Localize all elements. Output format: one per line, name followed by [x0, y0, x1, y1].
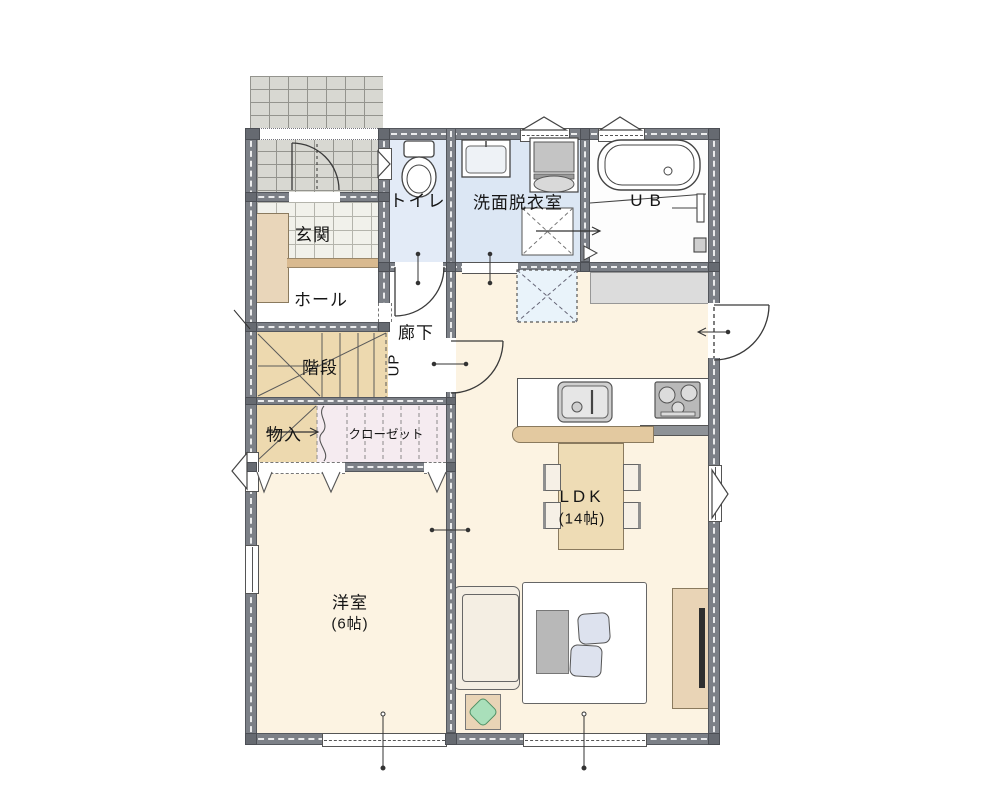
- pillar: [446, 462, 456, 472]
- hall-corridor-opening: [378, 303, 392, 322]
- ldk-south-window: [523, 733, 647, 747]
- western-room-west-window: [245, 545, 259, 594]
- wall-washroom-bath: [580, 128, 590, 262]
- pillar: [378, 192, 390, 202]
- entrance-door-opening: [289, 192, 340, 202]
- back-door-arc: [714, 305, 769, 360]
- pillar: [445, 733, 457, 745]
- room-label-storage: 物入: [266, 421, 302, 446]
- washroom-door-opening: [462, 262, 518, 274]
- back-door-opening: [708, 303, 720, 358]
- room-label-bath: UB: [630, 191, 668, 211]
- western-room-south-window: [322, 733, 447, 747]
- room-label-stairs: 階段: [302, 354, 338, 379]
- washroom-window: [520, 128, 570, 142]
- room-label-closet: クローゼット: [348, 424, 423, 443]
- floor-cushion: [569, 644, 603, 678]
- room-size-ldk: (14帖): [559, 508, 606, 529]
- pillar: [708, 128, 720, 140]
- pillar: [708, 262, 720, 272]
- pillar: [245, 192, 257, 202]
- pillar: [245, 462, 257, 472]
- chair: [543, 464, 561, 491]
- shoe-cabinet: [255, 213, 289, 303]
- chair: [623, 502, 641, 529]
- wall-center: [446, 128, 456, 733]
- pillar: [378, 322, 390, 332]
- room-label-hall: ホール: [294, 286, 348, 311]
- pillar: [446, 262, 456, 272]
- porch-tiles: [250, 76, 383, 128]
- pillar: [708, 733, 720, 745]
- room-label-toilet: トイレ: [390, 187, 447, 212]
- porch-side-window: [378, 148, 392, 180]
- room-label-corridor: 廊下: [398, 319, 434, 344]
- floor-plan: 玄関 ホール トイレ 洗面脱衣室 UB 廊下 UP 階段 物入 クローゼット L…: [0, 0, 1000, 800]
- counter-bar: [512, 426, 654, 443]
- bath-window: [598, 128, 645, 142]
- storage-door-opening: [255, 462, 345, 474]
- room-label-washroom: 洗面脱衣室: [473, 189, 563, 214]
- floor-cushion: [577, 612, 611, 645]
- pillar: [245, 397, 257, 405]
- pillar: [580, 262, 590, 272]
- room-label-western-room: 洋室: [332, 589, 368, 614]
- tv: [699, 608, 705, 688]
- pillar: [378, 262, 390, 272]
- room-label-ldk: LDK: [559, 487, 604, 507]
- pillar: [245, 322, 257, 332]
- wall-left: [245, 128, 257, 745]
- room-label-genkan: 玄関: [295, 221, 331, 246]
- entrance-step: [287, 258, 378, 268]
- porch-edge: [245, 128, 390, 140]
- pillar: [446, 397, 456, 405]
- wall-hall-south: [245, 322, 390, 332]
- ldk-door-opening: [446, 338, 456, 392]
- entrance-alcove-tiles: [257, 138, 378, 192]
- closet-door-opening: [424, 462, 446, 474]
- wall-bottom: [245, 733, 720, 745]
- wall-stairs-south: [245, 397, 456, 405]
- ldk-east-window: [708, 465, 722, 522]
- pillar: [245, 128, 260, 140]
- pillar: [378, 128, 390, 140]
- chair: [623, 464, 641, 491]
- room-size-western-room: (6帖): [331, 613, 368, 634]
- toilet-door-opening: [395, 262, 443, 272]
- stairs-up-label: UP: [386, 354, 403, 377]
- wall-right: [708, 128, 720, 745]
- kitchen-counter: [517, 378, 710, 427]
- laundry-counter: [590, 272, 710, 304]
- pillar: [580, 128, 590, 140]
- pillar: [245, 733, 257, 745]
- coffee-table: [536, 610, 569, 674]
- sofa-seat: [462, 594, 519, 682]
- west-casement-window: [245, 452, 259, 492]
